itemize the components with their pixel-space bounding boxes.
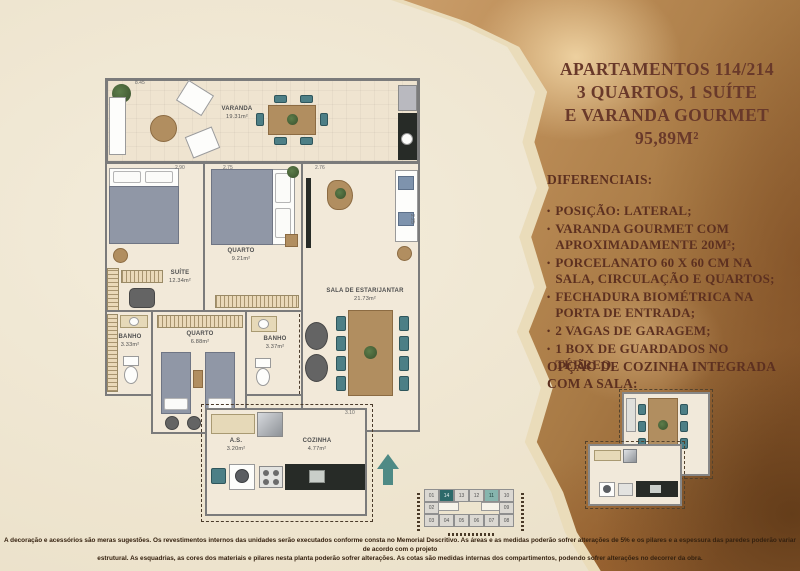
dimension-label: 3.10 <box>345 410 355 416</box>
coffee-table <box>150 115 177 142</box>
chair <box>399 376 409 391</box>
pillow <box>164 398 188 410</box>
bullet-icon: • <box>547 255 550 287</box>
dimension-label: 2.75 <box>223 165 233 171</box>
dining-armchair <box>305 354 328 382</box>
list-item: • PORCELANATO 60 X 60 CM NA SALA, CIRCUL… <box>547 255 791 287</box>
sink <box>258 319 269 329</box>
diferenciais-item-2: VARANDA GOURMET COM APROXIMADAMENTE 20M²… <box>555 221 791 253</box>
diferenciais-item-5: 2 VAGAS DE GARAGEM; <box>555 323 710 339</box>
stove <box>618 483 633 496</box>
toilet-tank <box>123 356 139 366</box>
bullet-icon: • <box>547 323 550 339</box>
option-heading: OPÇÃO DE COZINHA INTEGRADA COM A SALA: <box>547 358 800 392</box>
sofa-pillow <box>398 176 414 190</box>
list-item: • VARANDA GOURMET COM APROXIMADAMENTE 20… <box>547 221 791 253</box>
chair <box>300 137 313 145</box>
toilet <box>124 366 138 384</box>
disclaimer-text: A decoração e acessórios são meras suges… <box>0 536 800 563</box>
chair <box>638 421 646 432</box>
lounge-chair <box>185 126 221 158</box>
unit-cell: 01 <box>424 489 439 502</box>
chair <box>336 376 346 391</box>
chair <box>399 316 409 331</box>
pouf <box>165 416 179 430</box>
option-heading-line1: OPÇÃO DE COZINHA INTEGRADA <box>547 358 800 375</box>
room-label-quarto1: QUARTO 9.21m² <box>209 248 273 263</box>
diferenciais-item-1: POSIÇÃO: LATERAL; <box>555 203 691 219</box>
varanda-bench <box>109 97 126 155</box>
unit-cell: 08 <box>499 514 514 527</box>
unit-cell: 06 <box>469 514 484 527</box>
chair <box>680 404 688 415</box>
key-plan-row-top: 01 14 13 12 11 10 <box>424 489 518 502</box>
dimension-label: 2.90 <box>175 165 185 171</box>
room-label-quarto2: QUARTO 6.88m² <box>157 331 243 346</box>
dimension-label: 2.25 <box>409 214 415 224</box>
mini-counter <box>626 398 636 432</box>
list-item: • POSIÇÃO: LATERAL; <box>547 203 791 219</box>
unit-cell: 03 <box>424 514 439 527</box>
toilet <box>256 368 270 386</box>
pouf <box>129 288 155 308</box>
chair <box>399 356 409 371</box>
list-item: • FECHADURA BIOMÉTRICA NA PORTA DE ENTRA… <box>547 289 791 321</box>
bullet-icon: • <box>547 203 550 219</box>
key-plan-row-middle: 02 09 <box>424 502 514 514</box>
dimension-label: 8.45 <box>135 80 145 86</box>
page-title: APARTAMENTOS 114/214 3 QUARTOS, 1 SUÍTE … <box>538 58 796 150</box>
street-label-right <box>521 491 524 531</box>
room-label-banho2: BANHO 3.37m² <box>249 336 301 351</box>
unit-cell: 04 <box>439 514 454 527</box>
unit-cell: 10 <box>499 489 514 502</box>
list-item: • 2 VAGAS DE GARAGEM; <box>547 323 791 339</box>
room-suite: SUÍTE 12.34m² <box>105 162 205 312</box>
unit-cell-highlighted: 11 <box>484 489 499 502</box>
nightstand <box>285 234 298 247</box>
street-label-left <box>417 491 420 531</box>
option-mini-plan <box>588 392 714 508</box>
pillow <box>113 171 141 183</box>
wardrobe <box>157 315 243 328</box>
diferenciais-item-3: PORCELANATO 60 X 60 CM NA SALA, CIRCULAÇ… <box>555 255 791 287</box>
closet <box>107 268 119 312</box>
title-line-2: 3 QUARTOS, 1 SUÍTE <box>538 81 796 104</box>
title-line-1: APARTAMENTOS 114/214 <box>538 58 796 81</box>
mini-counter <box>594 450 621 461</box>
room-banho-2: BANHO 3.37m² <box>245 310 303 396</box>
unit-cell-highlighted: 14 <box>439 489 454 502</box>
floor-plan: VARANDA 19.31m² SUÍTE 12.34m² <box>105 78 421 524</box>
unit-cell: 09 <box>499 502 514 514</box>
chair <box>336 316 346 331</box>
unit-cell: 13 <box>454 489 469 502</box>
chair <box>320 113 328 126</box>
mini-plan-kitchen <box>588 444 682 506</box>
grill-counter <box>398 85 417 111</box>
title-line-4: 95,89M² <box>538 127 796 150</box>
shower <box>107 314 118 392</box>
option-heading-line2: COM A SALA: <box>547 375 800 392</box>
mini-sink <box>623 449 637 463</box>
room-sala: SALA DE ESTAR/JANTAR 21.73m² <box>301 162 420 432</box>
chair <box>274 137 287 145</box>
duvet <box>211 169 273 245</box>
chair <box>680 421 688 432</box>
sink <box>129 317 139 326</box>
unit-cell: 07 <box>484 514 499 527</box>
diferenciais-section: DIFERENCIAIS: • POSIÇÃO: LATERAL; • VARA… <box>547 172 791 375</box>
dimension-label: 2.76 <box>315 165 325 171</box>
nightstand <box>193 370 203 388</box>
option-dashed-line <box>299 314 300 394</box>
room-quarto-1: QUARTO 9.21m² <box>203 162 303 312</box>
plant-icon <box>658 420 668 430</box>
chair <box>399 336 409 351</box>
chair <box>274 95 287 103</box>
stool <box>113 248 128 263</box>
counter-sink <box>401 133 413 145</box>
diferenciais-heading: DIFERENCIAIS: <box>547 172 791 188</box>
chair <box>300 95 313 103</box>
kitchen-sink <box>650 485 661 493</box>
room-label-suite: SUÍTE 12.34m² <box>157 270 203 285</box>
bullet-icon: • <box>547 221 550 253</box>
room-label-banho1: BANHO 3.33m² <box>109 334 151 349</box>
chair <box>336 356 346 371</box>
disclaimer-line-2: estrutural. As esquadrias, as cores dos … <box>0 554 800 563</box>
unit-cell: 05 <box>454 514 469 527</box>
room-label-sala: SALA DE ESTAR/JANTAR 21.73m² <box>311 288 419 303</box>
pillow <box>145 171 173 183</box>
kitchen-option-outline <box>201 404 373 522</box>
duvet <box>109 186 179 244</box>
title-line-3: E VARANDA GOURMET <box>538 104 796 127</box>
plant-icon <box>364 346 377 359</box>
plant-icon <box>287 114 298 125</box>
wardrobe <box>215 295 299 308</box>
unit-cell: 12 <box>469 489 484 502</box>
plant-icon <box>287 166 299 178</box>
chair <box>336 336 346 351</box>
flyer-page: APARTAMENTOS 114/214 3 QUARTOS, 1 SUÍTE … <box>0 0 800 571</box>
bullet-icon: • <box>547 289 550 321</box>
pouf <box>187 416 201 430</box>
chair <box>638 404 646 415</box>
diferenciais-item-4: FECHADURA BIOMÉTRICA NA PORTA DE ENTRADA… <box>555 289 791 321</box>
elevator-core <box>438 502 459 511</box>
entrance-arrow-icon <box>377 454 399 469</box>
key-plan-row-bottom: 03 04 05 06 07 08 <box>424 514 518 527</box>
entrance-arrow-stem <box>383 469 393 485</box>
building-key-plan: 01 14 13 12 11 10 02 09 03 04 05 06 07 0… <box>424 489 518 537</box>
room-label-as: A.S. 3.20m² <box>209 438 263 453</box>
room-label-varanda: VARANDA 19.31m² <box>208 106 266 121</box>
washer-door <box>603 485 611 493</box>
room-label-cozinha: COZINHA 4.77m² <box>277 438 357 453</box>
side-table <box>397 246 412 261</box>
dining-armchair <box>305 322 328 350</box>
room-banho-1: BANHO 3.33m² <box>105 310 153 396</box>
unit-cell: 02 <box>424 502 439 514</box>
disclaimer-line-1: A decoração e acessórios são meras suges… <box>0 536 800 554</box>
plant-icon <box>335 188 346 199</box>
tv-panel <box>306 178 311 248</box>
room-varanda: VARANDA 19.31m² <box>105 78 420 164</box>
pillow <box>275 173 291 203</box>
toilet-tank <box>255 358 271 368</box>
